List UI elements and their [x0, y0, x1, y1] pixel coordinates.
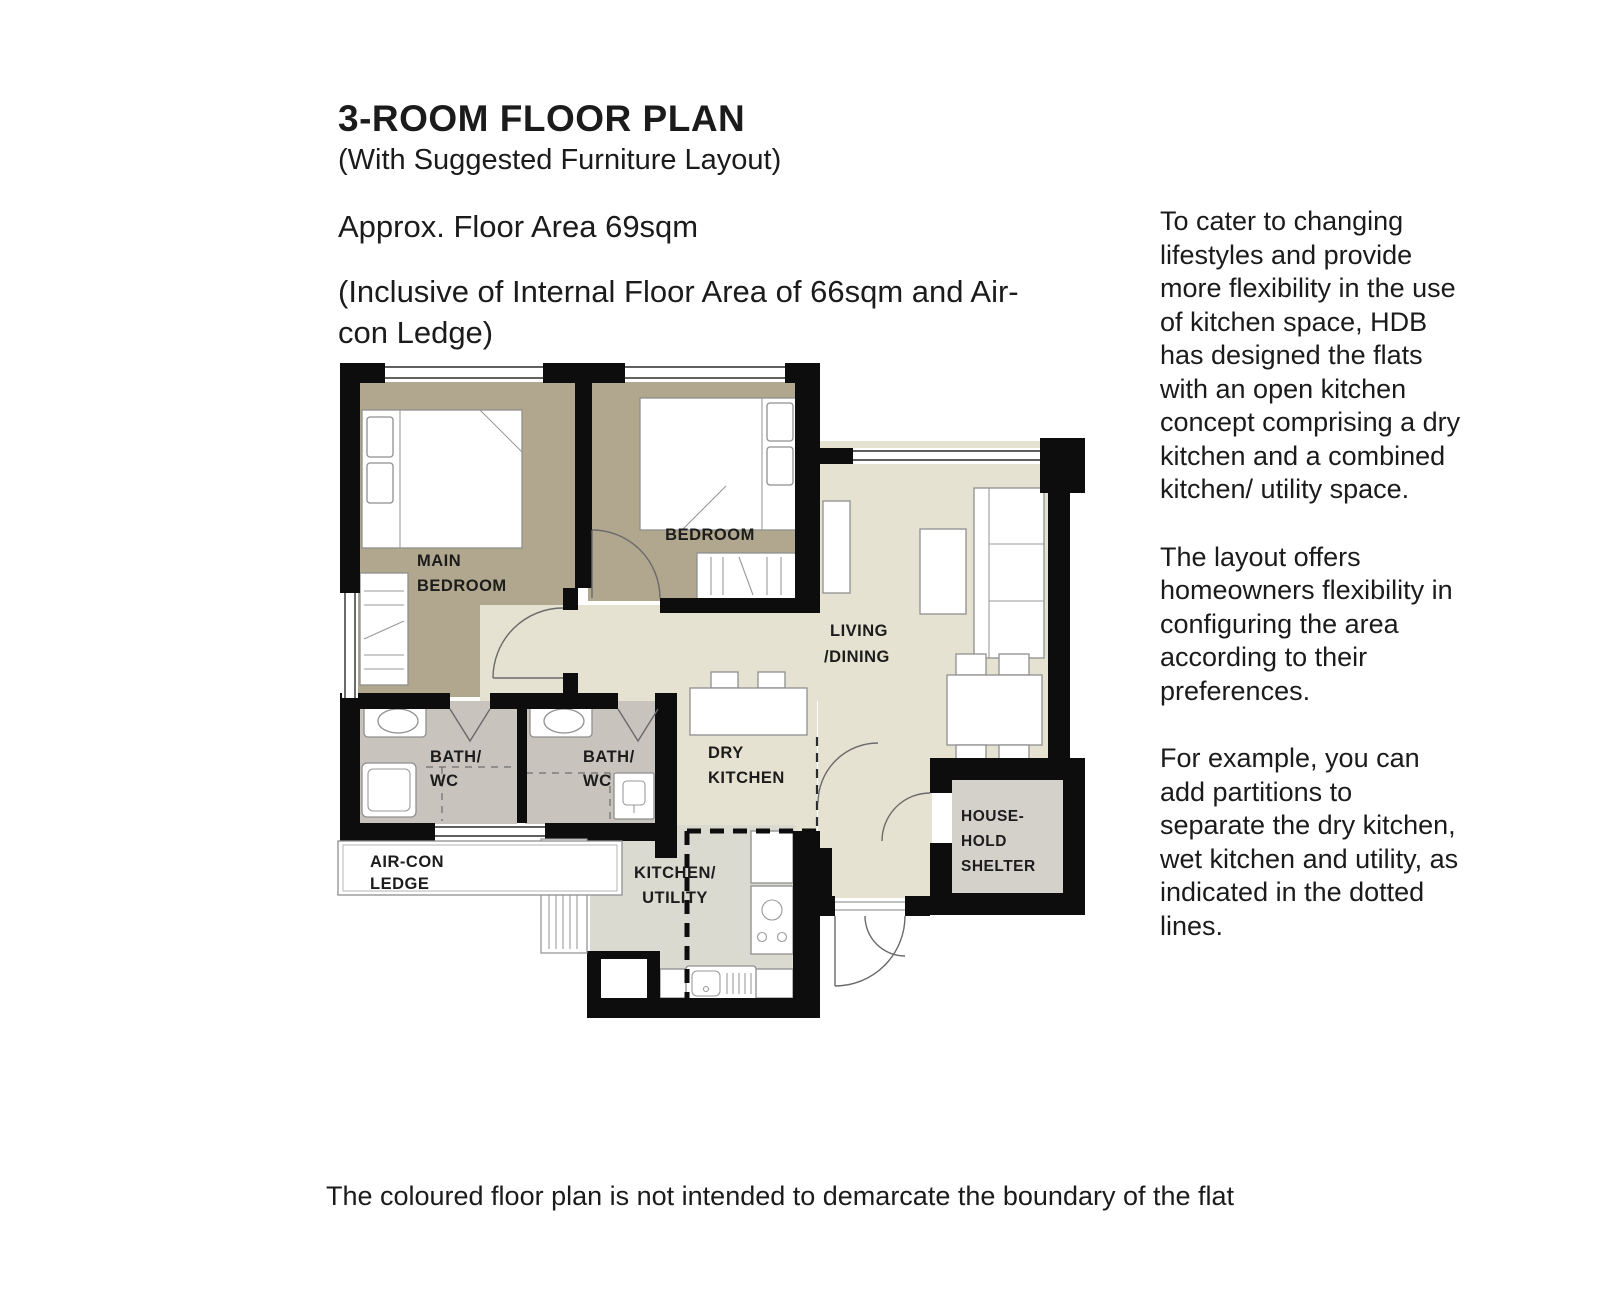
bedroom-wardrobe — [697, 553, 797, 599]
main-bedroom-side-window — [342, 593, 358, 698]
aircon-ledge-label: AIR-CON — [370, 853, 444, 871]
bath1-shower — [362, 763, 416, 817]
bedroom-window — [625, 364, 785, 382]
sofa — [974, 488, 1044, 658]
bath2-label: WC — [583, 772, 612, 790]
description-column: To cater to changing lifestyles and prov… — [1160, 205, 1464, 977]
main-bedroom-window — [385, 364, 543, 382]
bath-window — [435, 824, 545, 840]
dry-kitchen-label: KITCHEN — [708, 769, 785, 787]
main-bedroom-label: MAIN — [417, 552, 461, 570]
floor-plan-drawing: MAIN BEDROOM BEDROOM LIVING /DINING BATH… — [330, 353, 1095, 1053]
dry-kitchen-label: DRY — [708, 744, 744, 762]
household-shelter-label: HOLD — [961, 833, 1007, 850]
kitchen-sink — [686, 966, 756, 1001]
main-bedroom-bed — [362, 410, 522, 548]
household-shelter-label: HOUSE- — [961, 808, 1024, 825]
title-block: 3-ROOM FLOOR PLAN (With Suggested Furnit… — [338, 98, 1038, 353]
coffee-table — [920, 529, 966, 614]
entrance-door — [835, 902, 905, 986]
description-paragraph-3: For example, you can add partitions to s… — [1160, 742, 1464, 943]
disclaimer-text: The coloured floor plan is not intended … — [0, 1181, 1560, 1212]
bath1-label: BATH/ — [430, 748, 482, 766]
bath2-sink — [530, 705, 592, 737]
kitchen-utility-label: UTILITY — [642, 889, 708, 907]
stove — [751, 886, 793, 954]
kitchen-utility-label: KITCHEN/ — [634, 864, 716, 882]
floor-area-line: Approx. Floor Area 69sqm — [338, 209, 1038, 245]
tv-console — [823, 501, 850, 593]
bath2-toilet — [614, 773, 654, 819]
bedroom-bed — [640, 398, 797, 530]
main-bedroom-wardrobe — [360, 573, 408, 685]
description-paragraph-2: The layout offers homeowners flexibility… — [1160, 541, 1464, 709]
floor-plan: MAIN BEDROOM BEDROOM LIVING /DINING BATH… — [330, 353, 1095, 1053]
page-subtitle: (With Suggested Furniture Layout) — [338, 144, 1038, 177]
description-paragraph-1: To cater to changing lifestyles and prov… — [1160, 205, 1464, 507]
bath2-label: BATH/ — [583, 748, 635, 766]
bath1-sink — [364, 705, 426, 737]
bath1-label: WC — [430, 772, 459, 790]
household-shelter-label: SHELTER — [961, 858, 1036, 875]
living-dining-label: /DINING — [824, 648, 890, 666]
aircon-ledge-label: LEDGE — [370, 875, 429, 893]
main-bedroom-label: BEDROOM — [417, 577, 507, 595]
page-title: 3-ROOM FLOOR PLAN — [338, 98, 1038, 140]
bedroom-label: BEDROOM — [665, 526, 755, 544]
living-dining-label: LIVING — [830, 622, 888, 640]
entrance-vestibule-floor — [818, 743, 932, 898]
inclusive-area-line: (Inclusive of Internal Floor Area of 66s… — [338, 271, 1028, 353]
living-window — [853, 448, 1040, 464]
